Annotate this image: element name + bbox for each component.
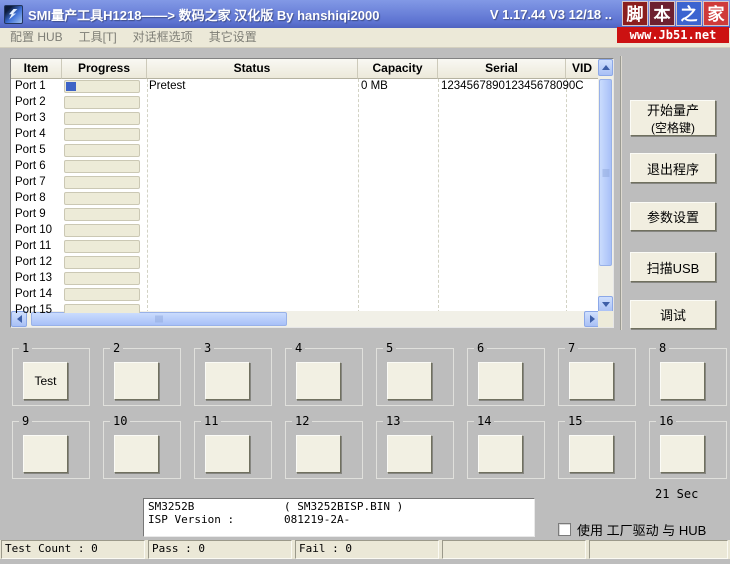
isp-version-label: ISP Version : [148, 513, 284, 526]
row-progress-cell [62, 191, 147, 207]
row-item-label: Port 6 [11, 159, 62, 175]
column-header-progress[interactable]: Progress [62, 59, 147, 79]
row-capacity [358, 95, 438, 111]
row-status [147, 239, 358, 255]
scrollbar-corner [598, 311, 613, 327]
table-row[interactable]: Port 12 [11, 255, 598, 271]
group-number: 10 [110, 414, 130, 428]
exit-program-button[interactable]: 退出程序 [630, 153, 716, 183]
app-icon [4, 5, 23, 24]
isp-version-value: 081219-2A- [284, 513, 350, 526]
elapsed-time: 21 Sec [655, 487, 698, 501]
row-item-label: Port 11 [11, 239, 62, 255]
port-group-15: 15 [558, 421, 636, 479]
port-table: ItemProgressStatusCapacitySerialVID Port… [10, 58, 614, 328]
row-status [147, 111, 358, 127]
arrow-down-icon [602, 302, 610, 311]
row-capacity [358, 159, 438, 175]
watermark: 脚 本 之 家 www.Jb51.net [617, 1, 729, 43]
status-fail: Fail : 0 [295, 540, 439, 559]
progress-bar [64, 80, 140, 93]
group-number: 16 [656, 414, 676, 428]
group-number: 2 [110, 341, 123, 355]
table-row[interactable]: Port 14 [11, 287, 598, 303]
row-serial [438, 239, 598, 255]
row-item-label: Port 2 [11, 95, 62, 111]
row-item-label: Port 3 [11, 111, 62, 127]
table-body: Port 1Pretest0 MB123456789012345678090CP… [11, 79, 598, 313]
row-capacity [358, 191, 438, 207]
menu-item-other-settings[interactable]: 其它设置 [201, 28, 265, 47]
port-test-button-6[interactable] [478, 362, 523, 400]
group-number: 15 [565, 414, 585, 428]
group-number: 14 [474, 414, 494, 428]
group-number: 13 [383, 414, 403, 428]
port-group-14: 14 [467, 421, 545, 479]
column-header-item[interactable]: Item [11, 59, 62, 79]
row-progress-cell [62, 223, 147, 239]
row-item-label: Port 9 [11, 207, 62, 223]
port-test-button-2[interactable] [114, 362, 159, 400]
port-group-9: 9 [12, 421, 90, 479]
table-body-rows: Port 1Pretest0 MB123456789012345678090CP… [11, 79, 598, 313]
row-capacity [358, 207, 438, 223]
row-progress-cell [62, 79, 147, 95]
thumb-grip [602, 169, 609, 176]
port-group-16: 16 [649, 421, 727, 479]
vertical-scrollbar[interactable] [598, 59, 613, 313]
row-progress-cell [62, 175, 147, 191]
chip-bin-file: ( SM3252BISP.BIN ) [284, 500, 403, 513]
row-status [147, 287, 358, 303]
port-group-6: 6 [467, 348, 545, 406]
progress-bar [64, 272, 140, 285]
row-serial [438, 207, 598, 223]
row-progress-cell [62, 111, 147, 127]
progress-bar [64, 144, 140, 157]
row-status [147, 271, 358, 287]
row-item-label: Port 4 [11, 127, 62, 143]
port-group-7: 7 [558, 348, 636, 406]
row-capacity [358, 223, 438, 239]
thumb-grip [156, 316, 163, 323]
factory-driver-checkbox-row[interactable]: 使用 工厂驱动 与 HUB [558, 520, 706, 539]
debug-button[interactable]: 调试 [630, 300, 716, 329]
port-test-button-14[interactable] [478, 435, 523, 473]
row-serial [438, 175, 598, 191]
group-number: 12 [292, 414, 312, 428]
port-test-button-7[interactable] [569, 362, 614, 400]
row-status: Pretest [147, 79, 358, 95]
table-row[interactable]: Port 11 [11, 239, 598, 255]
menu-item-dialog-options[interactable]: 对话框选项 [125, 28, 201, 47]
port-group-12: 12 [285, 421, 363, 479]
group-number: 3 [201, 341, 214, 355]
row-status [147, 191, 358, 207]
table-row[interactable]: Port 10 [11, 223, 598, 239]
row-capacity [358, 239, 438, 255]
watermark-char: 家 [703, 1, 729, 26]
port-test-button-12[interactable] [296, 435, 341, 473]
row-serial [438, 191, 598, 207]
table-row[interactable]: Port 2 [11, 95, 598, 111]
watermark-char: 脚 [622, 1, 648, 26]
port-group-10: 10 [103, 421, 181, 479]
progress-bar [64, 160, 140, 173]
progress-bar [64, 256, 140, 269]
row-progress-cell [62, 303, 147, 313]
row-status [147, 223, 358, 239]
watermark-char: 之 [676, 1, 702, 26]
menu-item-tools[interactable]: 工具[T] [71, 28, 125, 47]
chip-model: SM3252B [148, 500, 284, 513]
progress-bar [64, 288, 140, 301]
port-test-button-4[interactable] [296, 362, 341, 400]
watermark-char: 本 [649, 1, 675, 26]
chip-info-box: SM3252B ( SM3252BISP.BIN ) ISP Version :… [143, 498, 535, 537]
table-row[interactable]: Port 1Pretest0 MB123456789012345678090C [11, 79, 598, 95]
scroll-left-button[interactable] [11, 311, 27, 327]
row-serial [438, 223, 598, 239]
port-test-button-1[interactable]: Test [23, 362, 68, 400]
row-item-label: Port 14 [11, 287, 62, 303]
group-number: 4 [292, 341, 305, 355]
row-status [147, 207, 358, 223]
row-capacity [358, 143, 438, 159]
window-title: SMI量产工具H1218——> 数码之家 汉化版 By hanshiqi2000 [28, 5, 379, 24]
progress-bar [64, 192, 140, 205]
row-status [147, 255, 358, 271]
port-test-button-9[interactable] [23, 435, 68, 473]
button-sublabel: (空格键) [631, 119, 715, 136]
port-test-button-11[interactable] [205, 435, 250, 473]
port-test-button-3[interactable] [205, 362, 250, 400]
row-item-label: Port 7 [11, 175, 62, 191]
port-test-button-5[interactable] [387, 362, 432, 400]
column-header-status[interactable]: Status [147, 59, 358, 79]
port-group-4: 4 [285, 348, 363, 406]
button-label: 退出程序 [631, 159, 715, 178]
row-progress-cell [62, 239, 147, 255]
port-test-button-8[interactable] [660, 362, 705, 400]
vertical-scroll-thumb[interactable] [599, 79, 612, 266]
row-capacity [358, 111, 438, 127]
status-pass: Pass : 0 [148, 540, 292, 559]
row-status [147, 175, 358, 191]
row-serial [438, 271, 598, 287]
table-row[interactable]: Port 8 [11, 191, 598, 207]
row-progress-cell [62, 255, 147, 271]
row-serial [438, 303, 598, 313]
table-row[interactable]: Port 7 [11, 175, 598, 191]
button-label: 扫描USB [631, 258, 715, 277]
progress-bar [64, 96, 140, 109]
status-bar: Test Count : 0Pass : 0Fail : 0 [0, 540, 730, 559]
port-group-1: 1Test [12, 348, 90, 406]
port-test-button-16[interactable] [660, 435, 705, 473]
row-item-label: Port 12 [11, 255, 62, 271]
row-progress-cell [62, 287, 147, 303]
group-number: 1 [19, 341, 32, 355]
row-progress-cell [62, 271, 147, 287]
row-progress-cell [62, 127, 147, 143]
port-test-button-15[interactable] [569, 435, 614, 473]
port-group-3: 3 [194, 348, 272, 406]
row-capacity [358, 303, 438, 313]
button-label: 调试 [631, 305, 715, 324]
row-status [147, 127, 358, 143]
port-group-13: 13 [376, 421, 454, 479]
column-header-vid[interactable]: VID [566, 59, 598, 79]
row-progress-cell [62, 159, 147, 175]
window-version: V 1.17.44 V3 12/18 .. [490, 7, 612, 22]
port-test-button-10[interactable] [114, 435, 159, 473]
row-item-label: Port 8 [11, 191, 62, 207]
scroll-up-button[interactable] [598, 59, 613, 76]
status-extra-2 [589, 540, 728, 559]
group-number: 7 [565, 341, 578, 355]
column-header-serial[interactable]: Serial [438, 59, 566, 79]
group-number: 11 [201, 414, 221, 428]
row-capacity [358, 175, 438, 191]
button-label: 开始量产 [631, 100, 715, 119]
horizontal-scroll-thumb[interactable] [31, 312, 287, 326]
row-serial [438, 111, 598, 127]
progress-bar [64, 208, 140, 221]
port-test-button-13[interactable] [387, 435, 432, 473]
table-row[interactable]: Port 4 [11, 127, 598, 143]
row-progress-cell [62, 207, 147, 223]
horizontal-scrollbar[interactable] [11, 311, 600, 327]
row-progress-cell [62, 95, 147, 111]
table-row[interactable]: Port 6 [11, 159, 598, 175]
table-header: ItemProgressStatusCapacitySerialVID [11, 59, 598, 79]
group-number: 5 [383, 341, 396, 355]
progress-bar [64, 240, 140, 253]
progress-bar [64, 112, 140, 125]
watermark-url: www.Jb51.net [617, 27, 729, 43]
chip-info-line1: SM3252B ( SM3252BISP.BIN ) [148, 500, 534, 513]
row-serial [438, 95, 598, 111]
status-test-count: Test Count : 0 [1, 540, 145, 559]
chip-info-line2: ISP Version : 081219-2A- [148, 513, 534, 526]
factory-driver-checkbox[interactable] [558, 523, 571, 536]
port-group-2: 2 [103, 348, 181, 406]
row-serial [438, 255, 598, 271]
arrow-left-icon [13, 315, 22, 323]
row-capacity [358, 271, 438, 287]
column-header-capacity[interactable]: Capacity [358, 59, 438, 79]
row-capacity [358, 127, 438, 143]
row-item-label: Port 10 [11, 223, 62, 239]
row-serial [438, 127, 598, 143]
progress-bar [64, 128, 140, 141]
button-label: 参数设置 [631, 207, 715, 226]
watermark-tiles: 脚 本 之 家 [617, 1, 729, 26]
status-extra-1 [442, 540, 586, 559]
row-item-label: Port 5 [11, 143, 62, 159]
group-number: 9 [19, 414, 32, 428]
start-production-button[interactable]: 开始量产(空格键) [630, 100, 716, 136]
progress-bar [64, 176, 140, 189]
row-capacity: 0 MB [358, 79, 438, 95]
row-status [147, 159, 358, 175]
parameter-settings-button[interactable]: 参数设置 [630, 202, 716, 231]
row-item-label: Port 15 [11, 303, 62, 313]
progress-bar [64, 304, 140, 313]
panel-divider [620, 56, 622, 330]
row-serial [438, 143, 598, 159]
table-row[interactable]: Port 3 [11, 111, 598, 127]
port-group-5: 5 [376, 348, 454, 406]
progress-bar [64, 224, 140, 237]
row-serial [438, 287, 598, 303]
port-group-8: 8 [649, 348, 727, 406]
row-serial [438, 159, 598, 175]
row-item-label: Port 13 [11, 271, 62, 287]
row-serial: 123456789012345678090C [438, 79, 598, 95]
group-number: 8 [656, 341, 669, 355]
menu-item-config-hub[interactable]: 配置 HUB [2, 28, 71, 47]
scan-usb-button[interactable]: 扫描USB [630, 252, 716, 282]
row-status [147, 143, 358, 159]
row-status [147, 303, 358, 313]
row-status [147, 95, 358, 111]
port-group-11: 11 [194, 421, 272, 479]
table-row[interactable]: Port 5 [11, 143, 598, 159]
progress-chunk [66, 82, 76, 91]
table-row[interactable]: Port 15 [11, 303, 598, 313]
row-item-label: Port 1 [11, 79, 62, 95]
arrow-up-icon [602, 61, 610, 70]
group-number: 6 [474, 341, 487, 355]
table-row[interactable]: Port 13 [11, 271, 598, 287]
table-row[interactable]: Port 9 [11, 207, 598, 223]
row-progress-cell [62, 143, 147, 159]
row-capacity [358, 287, 438, 303]
row-capacity [358, 255, 438, 271]
factory-driver-label: 使用 工厂驱动 与 HUB [577, 520, 706, 539]
